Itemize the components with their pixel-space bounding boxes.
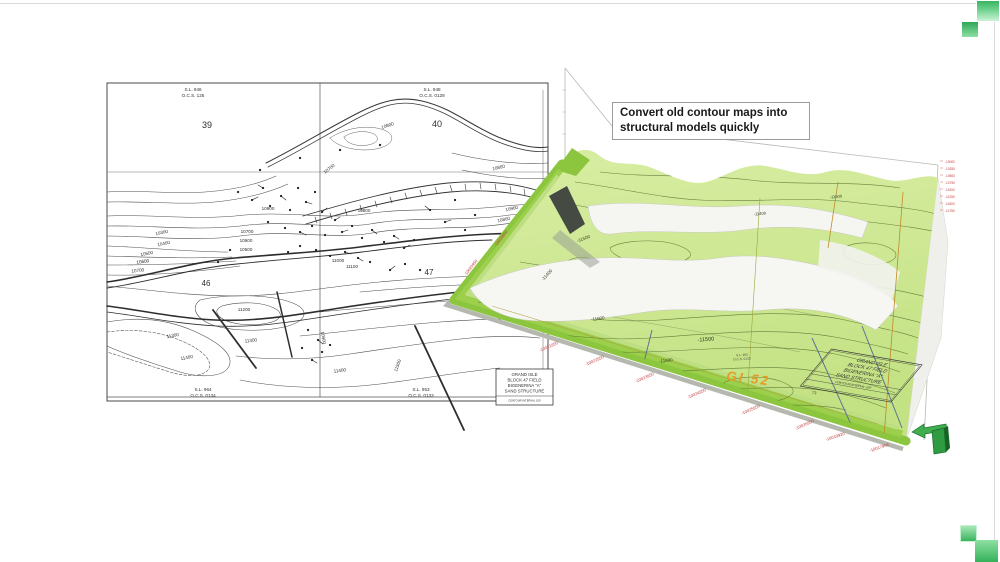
contour-label: 11300 xyxy=(166,332,180,339)
survey-label: S.L. 953 xyxy=(412,387,430,392)
orientation-arrow-icon xyxy=(912,424,950,454)
coordinate-label: -10021950 xyxy=(538,340,559,353)
survey-label: S.L. 946 xyxy=(184,87,202,92)
contour-label: 11300 xyxy=(244,337,257,343)
axis-tick-label: -10500 xyxy=(945,174,955,178)
block-number: 40 xyxy=(432,119,442,129)
block-number: 47 xyxy=(425,268,434,277)
contour-label: 11400 xyxy=(333,367,346,373)
title-line: GRAND ISLE xyxy=(511,372,537,377)
contour-label: 10800 xyxy=(492,163,506,171)
block-number: 39 xyxy=(202,120,212,130)
title-line: BLOCK 47 FIELD xyxy=(508,378,542,383)
axis-tick-label: -11750 xyxy=(945,209,955,213)
contour-label: 10900 xyxy=(320,331,327,345)
coordinate-label: -10024950 xyxy=(686,387,707,400)
survey-label: O.C.S. 125 xyxy=(182,93,205,98)
coordinate-label: -10025950 xyxy=(740,403,761,416)
survey-label: S.L. 964 xyxy=(194,387,212,392)
callout-note: Convert old contour maps into structural… xyxy=(612,102,810,140)
coordinate-label: -10019920 xyxy=(825,431,846,442)
contour-label: 10600 xyxy=(240,238,253,243)
axis-tick-label: -10750 xyxy=(945,181,955,185)
survey-label: S.L. 948 xyxy=(423,87,441,92)
contour-label: 10700 xyxy=(241,229,254,234)
survey-label: O.C.S. 0128 xyxy=(419,93,445,98)
callout-line-1: Convert old contour maps into xyxy=(620,106,802,121)
axis-tick-label: -11250 xyxy=(945,195,955,199)
contour-label: 11000 xyxy=(332,258,345,263)
slide-root: S.L. 946 O.C.S. 125 S.L. 948 O.C.S. 0128… xyxy=(0,0,1000,562)
title-line: BIGENERINA "A" xyxy=(508,383,542,388)
callout-line-2: structural models quickly xyxy=(620,121,802,136)
survey-labels: S.L. 946 O.C.S. 125 S.L. 948 O.C.S. 0128… xyxy=(182,87,445,398)
contour-label: 10800 xyxy=(381,121,395,130)
title-line: SAND STRUCTURE xyxy=(505,389,545,394)
contour-label: 10500 xyxy=(140,250,154,257)
map-title-block: GRAND ISLE BLOCK 47 FIELD BIGENERINA "A"… xyxy=(496,369,553,405)
contour-label: 11100 xyxy=(346,264,359,269)
axis-tick-label: -10000 xyxy=(945,160,955,164)
axis-tick-label: -11000 xyxy=(945,188,955,192)
contour-label: 10900 xyxy=(262,206,275,211)
contour-labels-2d: 10300 10400 10500 10600 10700 10700 1080… xyxy=(131,121,519,374)
contour-label: 10700 xyxy=(131,267,145,273)
contour-label: 11200 xyxy=(238,307,251,312)
block-numbers: 39 40 46 47 xyxy=(202,119,442,288)
contour-label: 10800 xyxy=(358,208,371,213)
coordinate-label: -10022950 xyxy=(584,354,605,367)
depth-label: -11500 xyxy=(697,336,714,343)
contour-label: 10800 xyxy=(497,216,511,224)
contour-label: 10600 xyxy=(136,258,150,265)
contour-label: 10700 xyxy=(323,163,336,175)
coordinate-label: -10023950 xyxy=(634,371,655,384)
block-number: 46 xyxy=(202,279,211,288)
axis-tick-label: -10250 xyxy=(945,167,955,171)
survey-label: O.C.S. 0134 xyxy=(190,393,216,398)
figure-canvas: S.L. 946 O.C.S. 125 S.L. 948 O.C.S. 0128… xyxy=(0,0,1000,562)
contour-label: 11400 xyxy=(180,354,194,361)
contour-label: 11500 xyxy=(393,358,402,372)
title-subline: CONTOUR INTERVAL 100' xyxy=(508,399,541,403)
contour-label: 10400 xyxy=(157,240,171,248)
axis-tick-label: -11500 xyxy=(945,202,955,206)
structural-model-3d: -11400 -11500 -11600 -11500 -11600 -1150… xyxy=(447,148,955,454)
contour-label: 10300 xyxy=(155,229,169,237)
contour-label: 10500 xyxy=(240,247,253,252)
survey-label: O.C.S. 0133 xyxy=(408,393,434,398)
